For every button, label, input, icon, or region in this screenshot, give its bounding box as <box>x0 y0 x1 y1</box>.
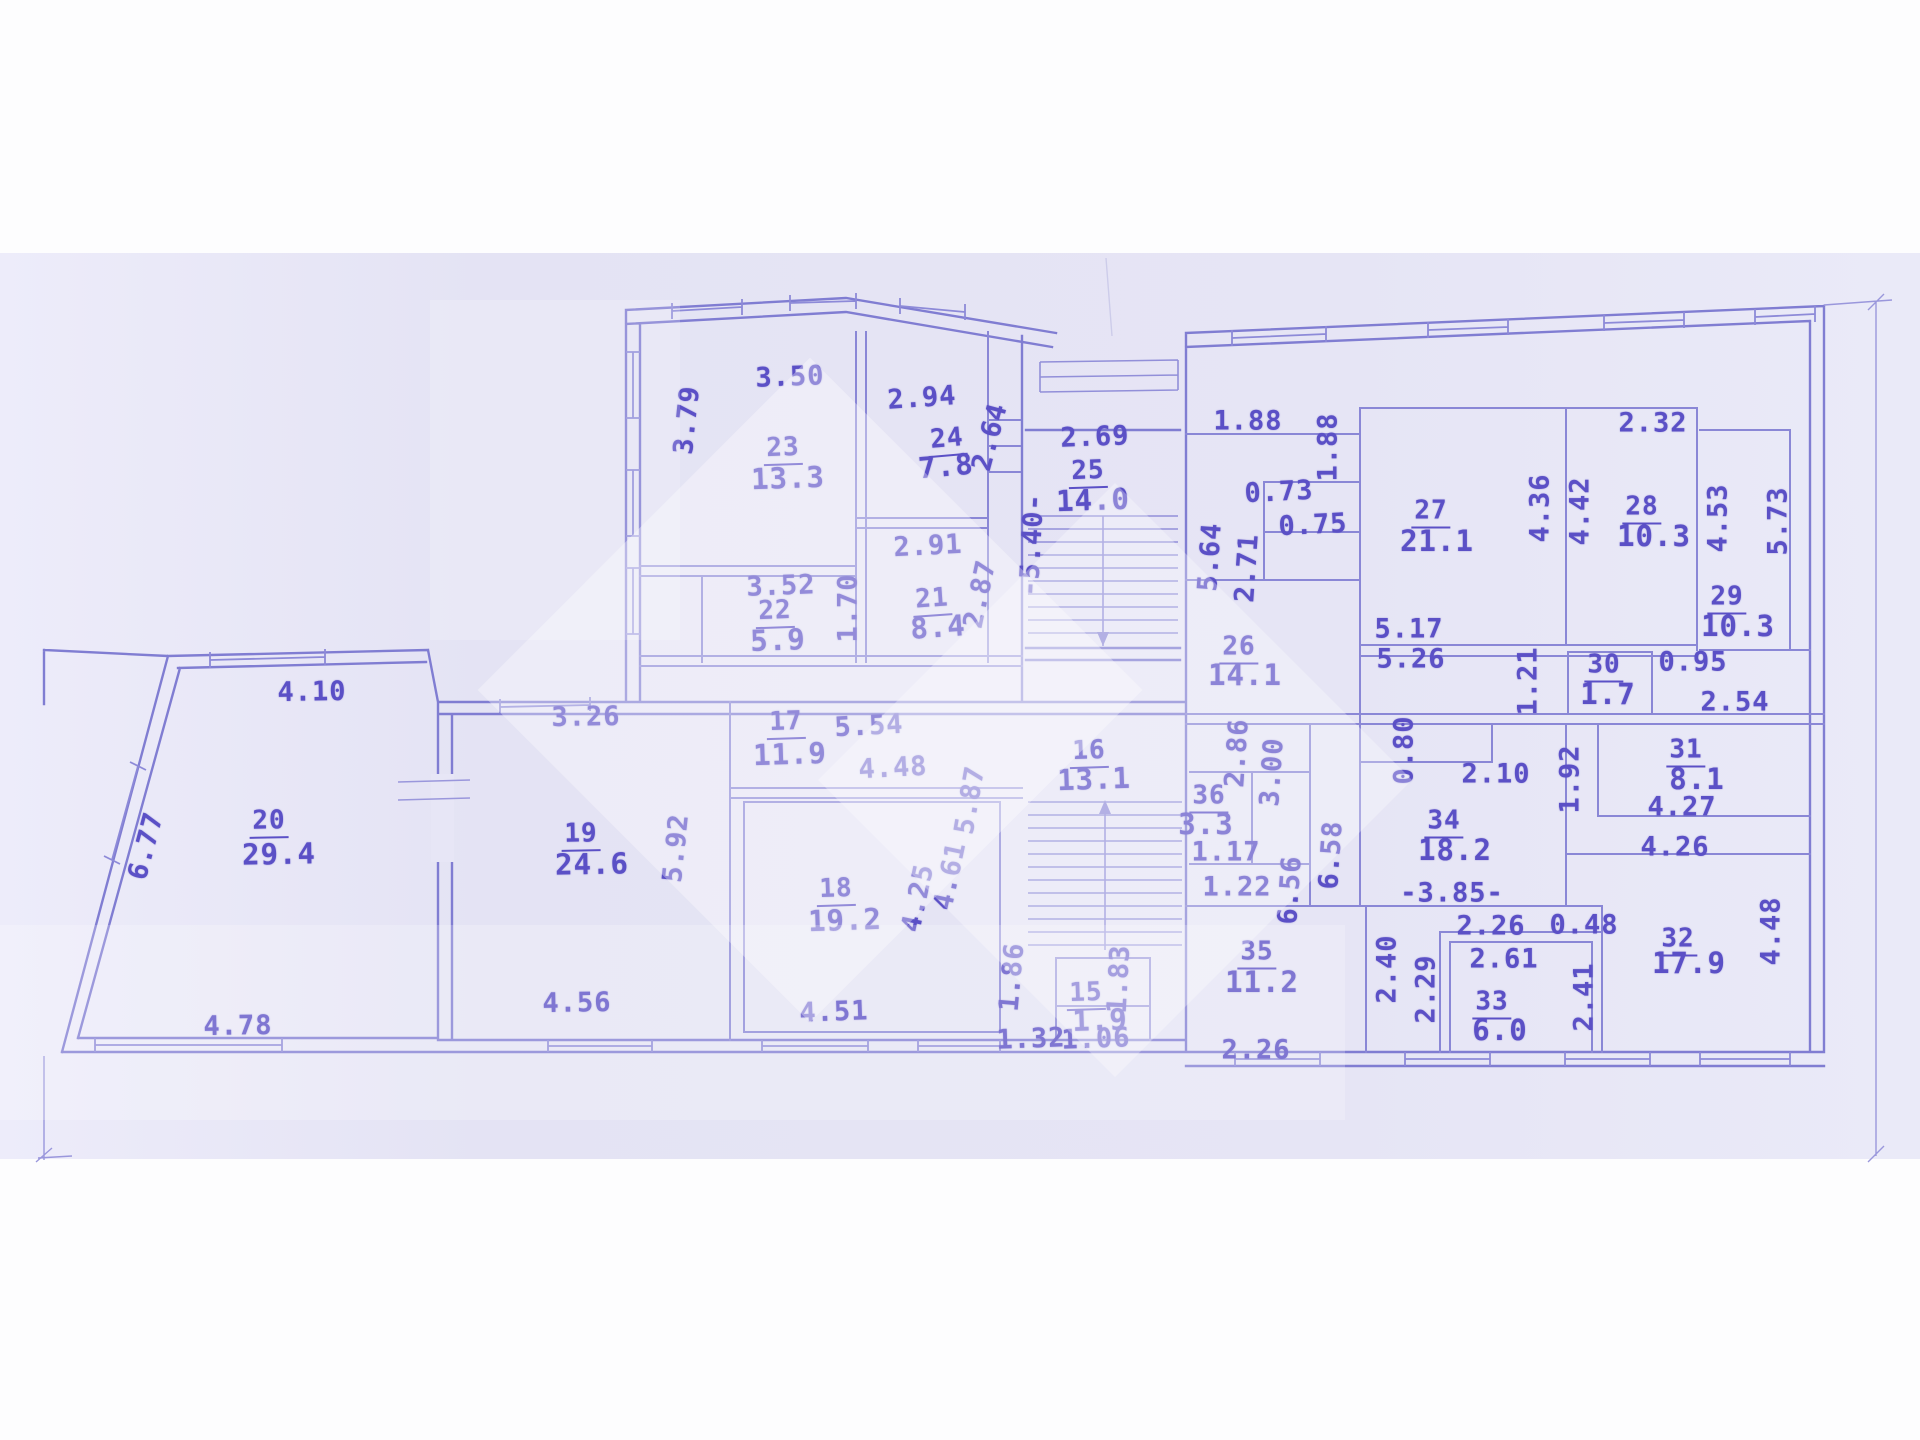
staircase-lines <box>1028 360 1182 950</box>
page-fold-line <box>1106 258 1112 336</box>
floor-plan-scan: 3.503.792313.32.94247.82.642.913.52225.9… <box>0 0 1920 1440</box>
walls-outer <box>44 298 1824 1066</box>
dimension-lines <box>36 258 1892 1162</box>
door-opening <box>431 774 454 862</box>
walls-interior <box>640 332 1824 1052</box>
floor-plan-drawing <box>0 0 1920 1440</box>
stair-down-arrow-icon <box>1097 632 1109 646</box>
